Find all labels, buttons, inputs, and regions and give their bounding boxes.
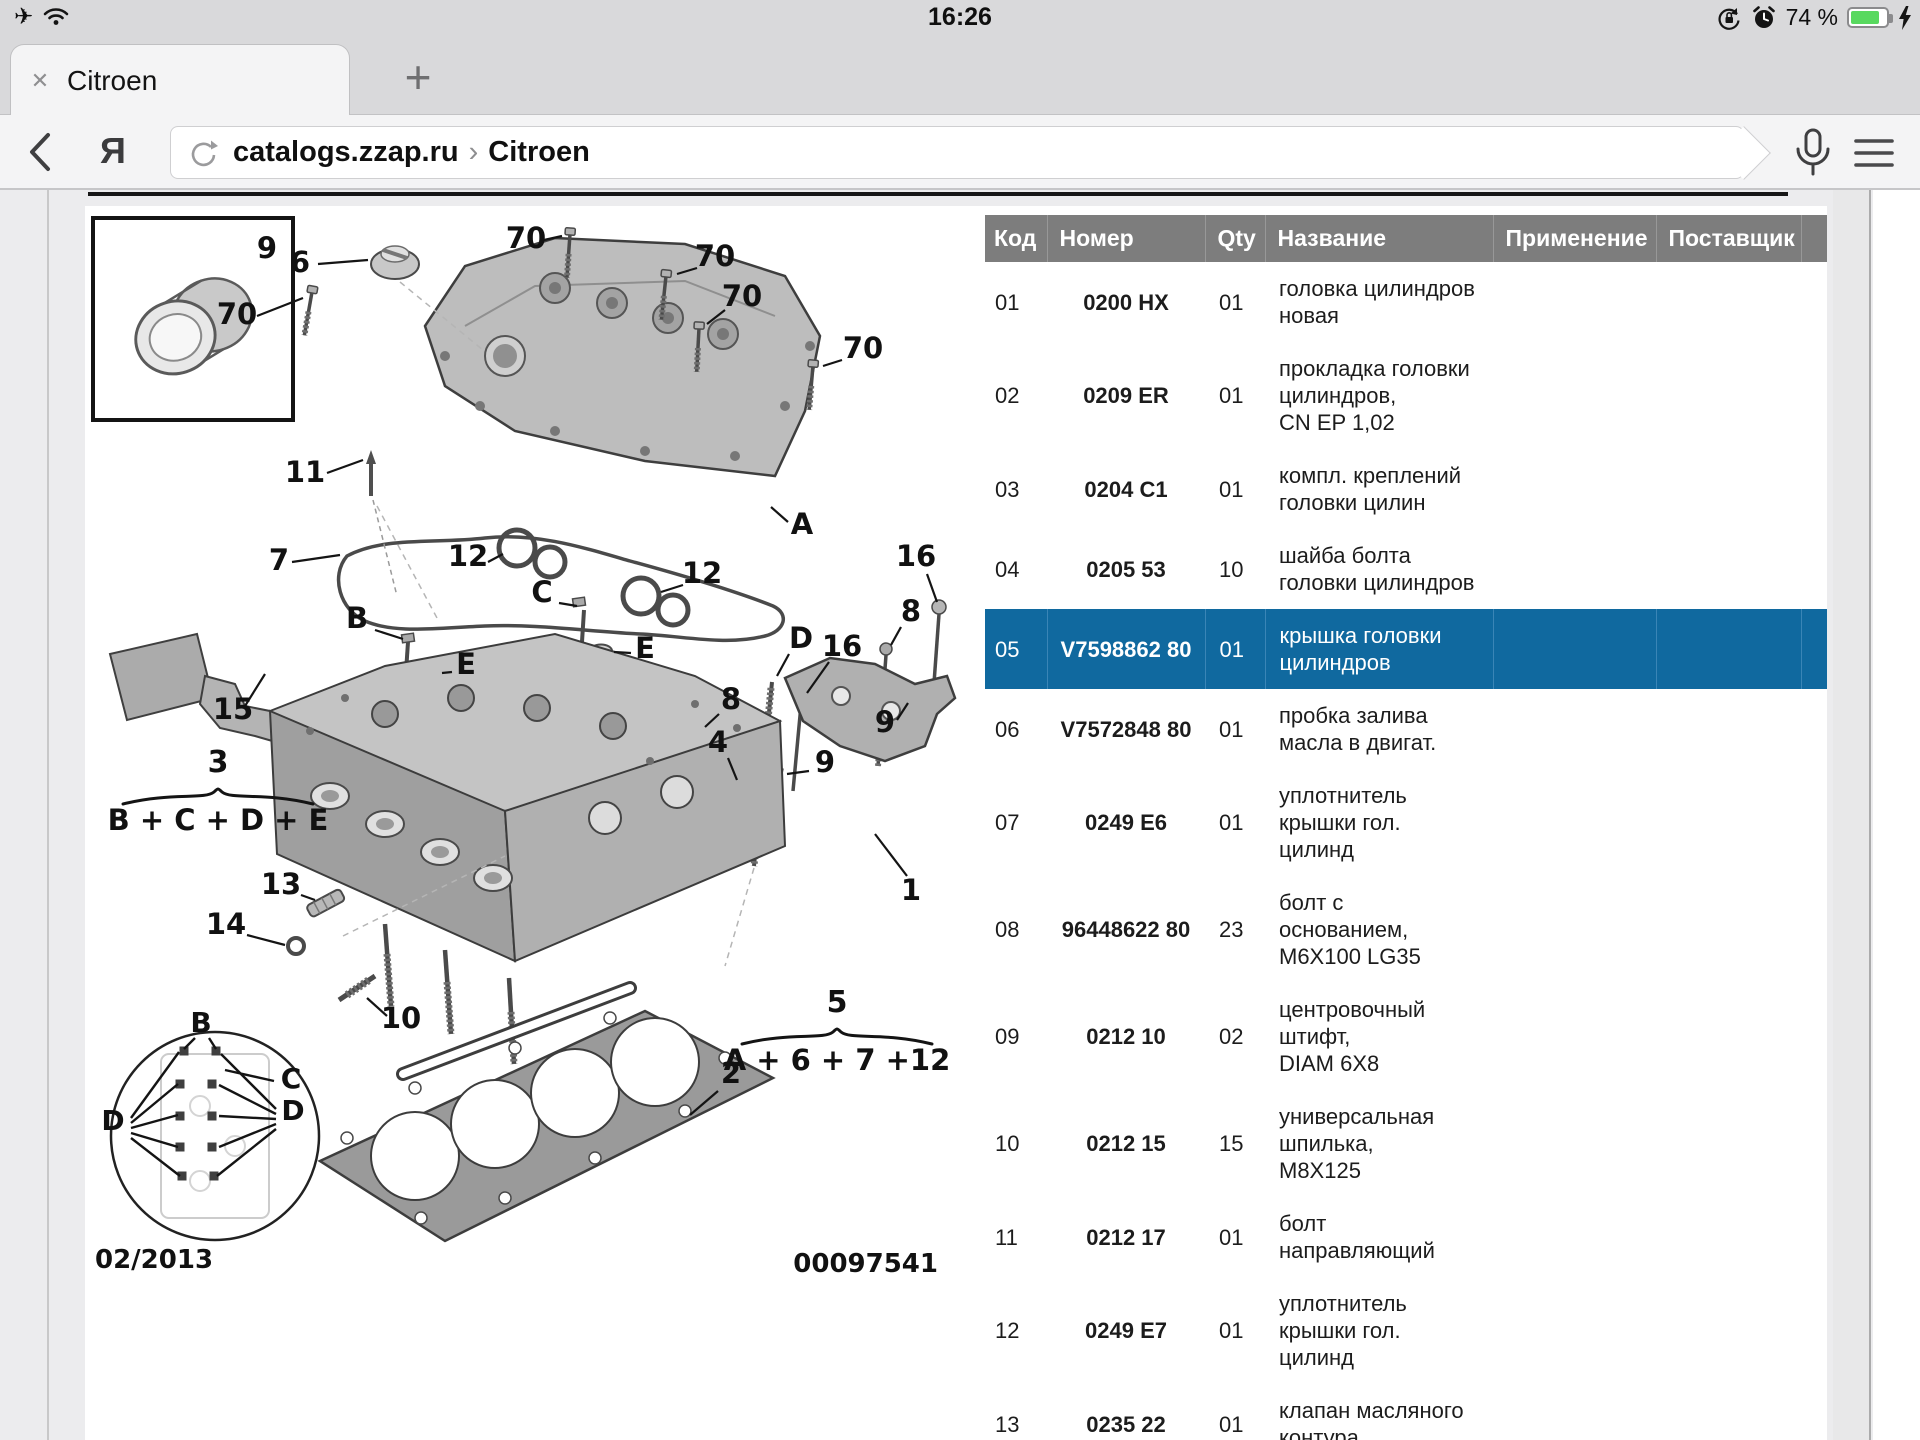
part-row-01[interactable]: 010200 HX01головка цилиндров новая (985, 262, 1827, 342)
col-header-3: Название (1265, 215, 1493, 262)
part-row-08[interactable]: 0896448622 8023болт с основанием, M6X100… (985, 876, 1827, 983)
bolt-position (208, 1143, 217, 1152)
callout-70[interactable]: 70 (506, 221, 546, 255)
callout-9[interactable]: 9 (875, 705, 895, 739)
parts-table-body: 010200 HX01головка цилиндров новая020209… (985, 262, 1827, 1440)
callout-10[interactable]: 10 (381, 1001, 421, 1035)
page-left-rule (47, 190, 49, 1440)
formula-top-5[interactable]: 5 (827, 985, 848, 1020)
leader-line (614, 652, 631, 653)
leader-line (875, 834, 907, 876)
detail-label-B[interactable]: B (190, 1006, 211, 1039)
leader-line (777, 654, 789, 676)
url-field[interactable]: catalogs.zzap.ru›Citroen (170, 126, 1744, 179)
part-row-07[interactable]: 070249 E601уплотнитель крышки гол. цилин… (985, 769, 1827, 876)
callout-11[interactable]: 11 (285, 455, 325, 489)
callout-C[interactable]: C (531, 575, 552, 609)
part-row-02[interactable]: 020209 ER01прокладка головки цилиндров, … (985, 342, 1827, 449)
part-row-04[interactable]: 040205 5310шайба болта головки цилиндров (985, 529, 1827, 609)
callout-14[interactable]: 14 (206, 907, 246, 941)
leader-line (247, 935, 285, 945)
diagram-footer-00097541[interactable]: 00097541 (793, 1249, 938, 1279)
formula-bottom-3[interactable]: B + C + D + E (108, 803, 329, 837)
reload-icon[interactable] (187, 138, 219, 170)
col-header-5: Поставщик (1656, 215, 1801, 262)
part-row-11[interactable]: 110212 1701болт направляющий (985, 1197, 1827, 1277)
oil-cap (371, 246, 419, 279)
part-row-13[interactable]: 130235 2201клапан масляного контура (985, 1384, 1827, 1440)
support-bracket (785, 658, 955, 761)
formula-bottom-5[interactable]: A + 6 + 7 +12 (724, 1043, 951, 1077)
diagram-footer-02/2013[interactable]: 02/2013 (95, 1245, 213, 1275)
new-tab-button[interactable]: + (388, 47, 448, 107)
callout-E[interactable]: E (456, 647, 476, 681)
url-text: catalogs.zzap.ru›Citroen (233, 127, 590, 178)
battery-percent: 74 % (1786, 4, 1838, 31)
leader-line (661, 585, 683, 592)
parts-table-wrap: КодНомерQtyНазваниеПрименениеПоставщик 0… (985, 215, 1827, 1440)
callout-70[interactable]: 70 (217, 297, 257, 331)
callout-15[interactable]: 15 (213, 692, 253, 726)
leader-line (327, 460, 363, 473)
tab-bar: ✕ Citroen + (0, 33, 1920, 115)
callout-12[interactable]: 12 (682, 556, 722, 590)
back-button[interactable] (20, 129, 64, 175)
leader-line (927, 574, 937, 602)
part-row-03[interactable]: 030204 C101компл. креплений головки цили… (985, 449, 1827, 529)
yandex-logo[interactable]: Я (100, 130, 126, 172)
callout-B[interactable]: B (346, 601, 368, 635)
bolt-position (208, 1112, 217, 1121)
col-header-0: Код (985, 215, 1047, 262)
alarm-icon (1751, 5, 1777, 31)
leader-line (891, 627, 901, 645)
col-header-spacer (1801, 215, 1827, 262)
leader-line (292, 555, 340, 562)
parts-table-header-row: КодНомерQtyНазваниеПрименениеПоставщик (985, 215, 1827, 262)
part-row-09[interactable]: 090212 1002центровочный штифт, DIAM 6X8 (985, 983, 1827, 1090)
url-field-arrow (1717, 126, 1771, 180)
catalog-panel: 9670707070701171212BCEED1681684991513141… (85, 206, 1827, 1440)
menu-icon[interactable] (1852, 133, 1896, 173)
callout-70[interactable]: 70 (695, 239, 735, 273)
leader-line (442, 672, 452, 673)
leader-line (318, 260, 368, 264)
callout-9[interactable]: 9 (257, 231, 277, 265)
page-scrollbar[interactable] (1833, 190, 1871, 1440)
callout-70[interactable]: 70 (843, 331, 883, 365)
leader-line (787, 771, 809, 774)
tab-title: Citroen (67, 65, 157, 97)
bolt-position (208, 1080, 217, 1089)
tab-close-icon[interactable]: ✕ (27, 68, 53, 94)
microphone-icon[interactable] (1790, 127, 1836, 179)
callout-16[interactable]: 16 (822, 629, 862, 663)
callout-12[interactable]: 12 (448, 539, 488, 573)
callout-6[interactable]: 6 (290, 245, 310, 279)
detail-label-C[interactable]: C (281, 1062, 302, 1095)
right-margin (1873, 190, 1920, 1440)
cylinder-head (270, 634, 785, 1064)
callout-A[interactable]: A (791, 507, 814, 541)
seal-rings-12 (499, 530, 688, 625)
callout-D[interactable]: D (789, 621, 813, 655)
col-header-2: Qty (1205, 215, 1265, 262)
callout-8[interactable]: 8 (901, 594, 921, 628)
callout-8[interactable]: 8 (721, 682, 741, 716)
part-row-10[interactable]: 100212 1515универсальная шпилька, M8X125 (985, 1090, 1827, 1197)
status-time: 16:26 (0, 3, 1920, 32)
callout-13[interactable]: 13 (261, 867, 301, 901)
page-content: 9670707070701171212BCEED1681684991513141… (0, 190, 1920, 1440)
address-bar-row: Я catalogs.zzap.ru›Citroen (0, 115, 1920, 190)
col-header-4: Применение (1493, 215, 1656, 262)
callout-70[interactable]: 70 (722, 279, 762, 313)
parts-diagram[interactable]: 9670707070701171212BCEED1681684991513141… (85, 206, 975, 1440)
detail-label-D[interactable]: D (281, 1094, 304, 1127)
leader-line (301, 895, 315, 900)
charging-icon (1898, 6, 1912, 30)
part-row-06[interactable]: 06V7572848 8001пробка залива масла в дви… (985, 689, 1827, 769)
leader-line (771, 507, 788, 522)
leader-line (375, 630, 403, 639)
part-row-05[interactable]: 05V7598862 8001крышка головки цилиндров (985, 609, 1827, 689)
valve-cover (425, 238, 820, 476)
part-row-12[interactable]: 120249 E701уплотнитель крышки гол. цилин… (985, 1277, 1827, 1384)
rotation-lock-icon (1716, 5, 1742, 31)
callout-9[interactable]: 9 (815, 745, 835, 779)
formula-top-3[interactable]: 3 (208, 745, 229, 780)
callout-4[interactable]: 4 (708, 725, 728, 759)
leader-line (823, 360, 842, 366)
chrome-top: ✈ 16:26 (0, 0, 1920, 115)
callout-16[interactable]: 16 (896, 539, 936, 573)
battery-icon (1847, 7, 1889, 28)
formula-brace (742, 1029, 932, 1044)
content-top-rule (88, 192, 1788, 196)
tab-citroen[interactable]: ✕ Citroen (10, 44, 350, 116)
col-header-1: Номер (1047, 215, 1205, 262)
status-bar: ✈ 16:26 (0, 0, 1920, 33)
parts-table: КодНомерQtyНазваниеПрименениеПоставщик 0… (985, 215, 1827, 1440)
browser-screen: ✈ 16:26 (0, 0, 1920, 1440)
callout-7[interactable]: 7 (269, 543, 289, 577)
callout-1[interactable]: 1 (901, 873, 921, 907)
callout-E[interactable]: E (635, 631, 655, 665)
detail-label-D[interactable]: D (101, 1104, 124, 1137)
